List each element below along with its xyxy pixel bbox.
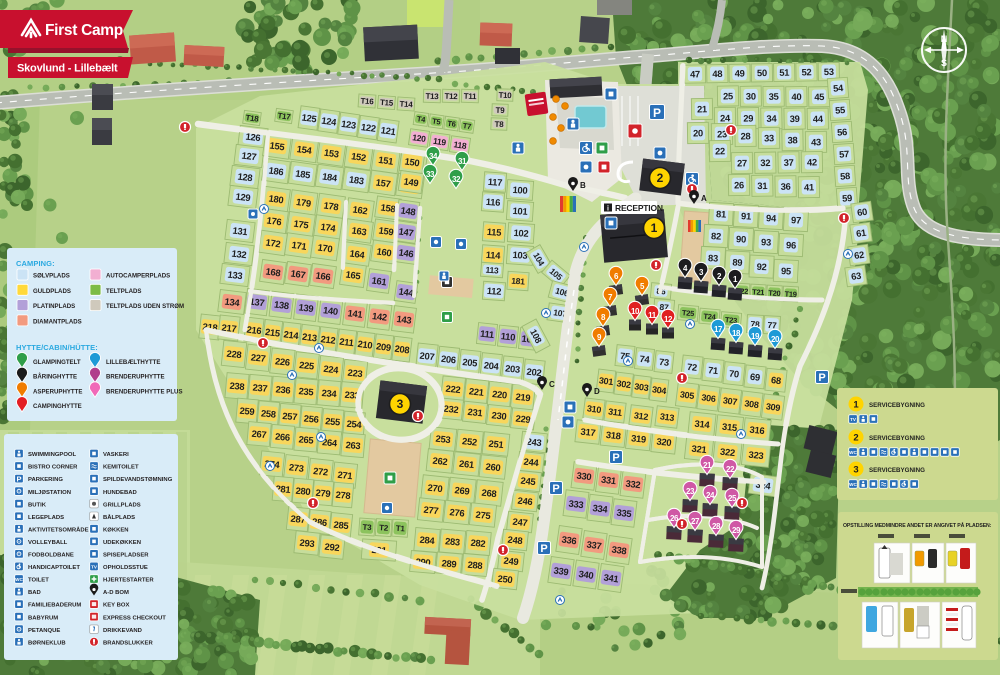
svg-text:40: 40 <box>791 91 801 102</box>
svg-text:303: 303 <box>634 381 650 393</box>
svg-text:47: 47 <box>690 68 700 79</box>
svg-text:129: 129 <box>235 191 251 204</box>
svg-text:BRENDERUPHYTTE PLUS: BRENDERUPHYTTE PLUS <box>106 388 183 395</box>
svg-text:280: 280 <box>295 485 311 497</box>
svg-text:125: 125 <box>301 111 317 124</box>
svg-text:LILLEBÆLTHYTTE: LILLEBÆLTHYTTE <box>106 359 160 366</box>
svg-text:339: 339 <box>553 564 569 577</box>
svg-text:172: 172 <box>265 236 281 249</box>
svg-text:168: 168 <box>265 265 281 278</box>
svg-text:P: P <box>653 106 661 120</box>
svg-text:335: 335 <box>616 507 632 520</box>
svg-text:10: 10 <box>631 307 640 316</box>
svg-text:20: 20 <box>771 335 780 344</box>
svg-text:71: 71 <box>708 364 719 376</box>
svg-text:30: 30 <box>746 91 756 102</box>
svg-text:24: 24 <box>706 491 715 500</box>
svg-text:251: 251 <box>488 438 504 450</box>
svg-text:209: 209 <box>376 340 392 353</box>
svg-text:90: 90 <box>736 233 746 245</box>
svg-text:24: 24 <box>720 112 731 123</box>
svg-text:DRIKKEVAND: DRIKKEVAND <box>103 628 142 634</box>
svg-text:246: 246 <box>517 495 533 507</box>
svg-text:2: 2 <box>853 432 858 443</box>
svg-text:95: 95 <box>781 265 791 277</box>
svg-text:AKTIVITETSOMRÅDE: AKTIVITETSOMRÅDE <box>28 526 89 533</box>
svg-text:255: 255 <box>325 415 341 427</box>
svg-text:336: 336 <box>561 533 577 546</box>
svg-text:202: 202 <box>526 366 542 378</box>
svg-text:T8: T8 <box>494 120 504 129</box>
svg-text:122: 122 <box>360 121 376 134</box>
svg-text:35: 35 <box>769 91 779 102</box>
svg-text:33: 33 <box>426 170 435 179</box>
svg-text:102: 102 <box>513 227 529 239</box>
svg-text:229: 229 <box>515 413 531 425</box>
svg-text:T7: T7 <box>462 121 471 131</box>
svg-text:T5: T5 <box>432 116 441 126</box>
svg-text:175: 175 <box>293 218 309 231</box>
svg-text:170: 170 <box>317 241 333 254</box>
svg-text:231: 231 <box>467 406 483 418</box>
svg-text:178: 178 <box>323 199 339 212</box>
svg-text:17: 17 <box>714 325 723 334</box>
svg-text:315: 315 <box>722 421 738 433</box>
svg-text:267: 267 <box>251 428 267 440</box>
svg-text:278: 278 <box>335 489 351 501</box>
svg-text:162: 162 <box>352 203 368 216</box>
svg-text:263: 263 <box>345 439 361 451</box>
svg-text:T2: T2 <box>379 523 389 533</box>
svg-text:T11: T11 <box>464 92 478 101</box>
svg-text:308: 308 <box>744 398 760 410</box>
svg-text:306: 306 <box>701 392 717 404</box>
svg-text:27: 27 <box>691 517 700 526</box>
svg-text:HANDICAPTOILET: HANDICAPTOILET <box>28 565 80 571</box>
svg-text:29: 29 <box>743 113 753 124</box>
svg-text:228: 228 <box>226 348 242 360</box>
svg-text:338: 338 <box>611 543 627 556</box>
svg-text:214: 214 <box>283 328 300 341</box>
svg-text:63: 63 <box>850 270 861 282</box>
svg-text:93: 93 <box>761 236 771 248</box>
svg-text:279: 279 <box>315 487 331 499</box>
svg-text:340: 340 <box>578 568 594 581</box>
svg-text:1: 1 <box>853 399 859 410</box>
svg-text:186: 186 <box>268 164 284 177</box>
svg-text:SERVICEBYGNING: SERVICEBYGNING <box>869 467 925 474</box>
svg-text:SWIMMINGPOOL: SWIMMINGPOOL <box>28 452 77 458</box>
svg-text:245: 245 <box>520 475 536 487</box>
svg-text:331: 331 <box>601 474 617 487</box>
svg-text:114: 114 <box>486 249 502 261</box>
svg-text:50: 50 <box>757 67 767 78</box>
svg-text:HUNDEBAD: HUNDEBAD <box>103 490 137 496</box>
svg-text:184: 184 <box>322 170 339 183</box>
svg-text:A-D BOM: A-D BOM <box>103 590 129 596</box>
svg-text:183: 183 <box>348 173 364 186</box>
svg-text:BABYRUM: BABYRUM <box>28 615 58 621</box>
svg-text:34: 34 <box>766 113 777 124</box>
svg-text:317: 317 <box>580 426 596 438</box>
svg-text:236: 236 <box>275 383 291 395</box>
svg-text:12: 12 <box>664 315 673 324</box>
svg-text:VOLLEYBALL: VOLLEYBALL <box>28 540 68 546</box>
svg-text:56: 56 <box>837 126 848 138</box>
svg-text:132: 132 <box>231 248 247 261</box>
svg-text:25: 25 <box>728 494 737 503</box>
svg-text:41: 41 <box>804 181 814 192</box>
svg-text:68: 68 <box>771 374 782 386</box>
svg-text:21: 21 <box>703 461 712 470</box>
svg-text:276: 276 <box>449 506 465 518</box>
svg-text:BÅLPLADS: BÅLPLADS <box>103 514 135 521</box>
svg-text:314: 314 <box>694 418 711 431</box>
svg-text:T1: T1 <box>395 524 405 534</box>
svg-text:31: 31 <box>458 157 467 166</box>
svg-text:3: 3 <box>853 464 858 475</box>
svg-text:TELTPLADS UDEN STRØM: TELTPLADS UDEN STRØM <box>106 303 184 310</box>
svg-text:18: 18 <box>732 329 741 338</box>
svg-text:147: 147 <box>398 225 414 238</box>
svg-text:51: 51 <box>779 67 789 78</box>
svg-text:138: 138 <box>274 298 290 311</box>
svg-text:277: 277 <box>423 504 439 516</box>
svg-text:97: 97 <box>791 214 801 226</box>
svg-text:1: 1 <box>651 221 658 235</box>
svg-text:284: 284 <box>419 534 436 546</box>
svg-text:60: 60 <box>856 206 867 218</box>
svg-text:3: 3 <box>397 397 404 411</box>
svg-text:25: 25 <box>723 90 733 101</box>
svg-text:257: 257 <box>282 410 298 422</box>
svg-text:288: 288 <box>467 559 483 571</box>
svg-text:157: 157 <box>375 176 391 189</box>
svg-text:43: 43 <box>811 136 821 147</box>
svg-text:166: 166 <box>315 269 331 282</box>
svg-text:36: 36 <box>781 181 791 192</box>
svg-text:82: 82 <box>711 230 721 242</box>
svg-text:143: 143 <box>396 313 412 326</box>
svg-text:176: 176 <box>266 214 282 227</box>
svg-text:307: 307 <box>722 395 738 407</box>
svg-text:341: 341 <box>603 571 619 584</box>
svg-text:SERVICEBYGNING: SERVICEBYGNING <box>869 402 925 409</box>
svg-text:320: 320 <box>656 436 672 448</box>
svg-text:TELTPLADS: TELTPLADS <box>106 288 141 295</box>
svg-text:RECEPTION: RECEPTION <box>615 203 663 213</box>
svg-text:KEY BOX: KEY BOX <box>103 603 129 609</box>
svg-text:WC: WC <box>15 577 23 582</box>
svg-text:212: 212 <box>320 333 336 346</box>
svg-text:181: 181 <box>511 276 526 287</box>
svg-text:48: 48 <box>712 68 722 79</box>
svg-text:C: C <box>549 380 555 389</box>
svg-text:57: 57 <box>839 148 850 160</box>
svg-text:GLAMPINGTELT: GLAMPINGTELT <box>33 359 81 366</box>
svg-text:301: 301 <box>598 375 614 387</box>
svg-text:271: 271 <box>337 469 353 481</box>
svg-text:BUTIK: BUTIK <box>28 502 47 508</box>
svg-text:152: 152 <box>351 150 367 163</box>
svg-text:272: 272 <box>313 465 329 477</box>
svg-text:T25: T25 <box>682 308 695 318</box>
svg-text:TV: TV <box>850 417 857 422</box>
svg-text:133: 133 <box>227 269 243 282</box>
svg-text:T9: T9 <box>495 106 505 115</box>
svg-text:T14: T14 <box>399 99 413 109</box>
svg-text:T15: T15 <box>380 98 394 108</box>
svg-text:221: 221 <box>468 385 484 397</box>
svg-text:256: 256 <box>303 413 319 425</box>
svg-text:222: 222 <box>445 383 461 395</box>
svg-text:20: 20 <box>693 127 703 138</box>
svg-text:258: 258 <box>261 407 277 419</box>
svg-text:158: 158 <box>380 201 396 214</box>
svg-text:161: 161 <box>371 274 387 287</box>
svg-text:219: 219 <box>515 391 531 403</box>
svg-text:123: 123 <box>341 118 357 131</box>
svg-text:211: 211 <box>339 336 355 349</box>
svg-text:EXPRESS CHECKOUT: EXPRESS CHECKOUT <box>103 615 166 621</box>
svg-text:142: 142 <box>372 310 388 323</box>
svg-text:SPISEPLADSER: SPISEPLADSER <box>103 553 149 559</box>
svg-text:32: 32 <box>760 157 770 168</box>
svg-text:305: 305 <box>679 389 695 401</box>
svg-text:238: 238 <box>229 380 245 392</box>
svg-text:HYTTE/CABIN/HÜTTE:: HYTTE/CABIN/HÜTTE: <box>16 343 98 352</box>
svg-text:KØKKEN: KØKKEN <box>103 527 129 533</box>
svg-text:70: 70 <box>729 368 740 380</box>
svg-text:62: 62 <box>853 249 864 261</box>
svg-text:208: 208 <box>394 343 410 356</box>
svg-text:153: 153 <box>323 147 339 160</box>
svg-text:139: 139 <box>298 301 314 314</box>
svg-text:159: 159 <box>378 224 394 237</box>
svg-text:210: 210 <box>357 338 373 351</box>
svg-text:249: 249 <box>503 555 519 567</box>
svg-text:FAMILIEBADERUM: FAMILIEBADERUM <box>28 603 81 609</box>
svg-text:45: 45 <box>814 91 824 102</box>
svg-text:174: 174 <box>320 221 337 234</box>
svg-text:BISTRO CORNER: BISTRO CORNER <box>28 465 78 471</box>
svg-text:185: 185 <box>295 167 311 180</box>
svg-text:330: 330 <box>576 470 592 483</box>
svg-text:33: 33 <box>764 132 774 143</box>
svg-text:KEMITOILET: KEMITOILET <box>103 465 139 471</box>
svg-text:134: 134 <box>224 296 241 309</box>
svg-text:P: P <box>612 452 619 464</box>
svg-text:154: 154 <box>296 143 313 156</box>
svg-text:T10: T10 <box>498 91 512 100</box>
svg-text:116: 116 <box>486 196 501 208</box>
svg-text:289: 289 <box>441 557 457 569</box>
svg-text:269: 269 <box>454 484 470 496</box>
svg-text:337: 337 <box>586 538 602 551</box>
svg-text:61: 61 <box>855 227 866 239</box>
svg-text:34: 34 <box>429 152 438 161</box>
svg-text:LEGEPLADS: LEGEPLADS <box>28 515 64 521</box>
svg-text:250: 250 <box>497 573 513 585</box>
svg-text:216: 216 <box>246 324 262 337</box>
svg-text:321: 321 <box>691 443 707 455</box>
svg-text:49: 49 <box>735 68 745 79</box>
svg-text:148: 148 <box>400 204 416 217</box>
svg-text:96: 96 <box>786 239 796 251</box>
svg-text:59: 59 <box>842 192 853 204</box>
svg-text:204: 204 <box>483 359 500 372</box>
svg-text:22: 22 <box>715 145 725 156</box>
svg-text:247: 247 <box>512 516 528 528</box>
svg-text:19: 19 <box>751 332 760 341</box>
svg-text:54: 54 <box>833 82 845 94</box>
svg-text:121: 121 <box>380 124 396 137</box>
svg-text:260: 260 <box>485 461 501 473</box>
svg-text:115: 115 <box>487 226 502 238</box>
svg-text:DIAMANTPLADS: DIAMANTPLADS <box>33 319 82 326</box>
svg-text:42: 42 <box>807 156 817 167</box>
svg-text:167: 167 <box>290 267 306 280</box>
svg-text:B: B <box>580 181 586 190</box>
svg-text:23: 23 <box>686 487 695 496</box>
svg-text:BAD: BAD <box>28 590 41 596</box>
svg-text:53: 53 <box>824 66 834 77</box>
svg-text:163: 163 <box>351 224 367 237</box>
svg-text:319: 319 <box>631 432 647 444</box>
svg-text:119: 119 <box>432 136 447 148</box>
svg-text:P: P <box>540 543 547 555</box>
svg-text:FODBOLDBANE: FODBOLDBANE <box>28 553 74 559</box>
svg-text:215: 215 <box>265 326 281 339</box>
svg-text:26: 26 <box>734 179 744 190</box>
svg-text:333: 333 <box>568 498 584 511</box>
svg-text:283: 283 <box>445 535 461 547</box>
svg-text:224: 224 <box>323 363 340 376</box>
svg-text:309: 309 <box>765 401 781 413</box>
svg-text:83: 83 <box>708 252 718 264</box>
svg-text:226: 226 <box>275 355 291 367</box>
svg-text:292: 292 <box>324 541 340 553</box>
svg-text:SPILDEVANDSTØMNING: SPILDEVANDSTØMNING <box>103 477 173 483</box>
svg-text:WC: WC <box>849 450 857 455</box>
svg-text:HJERTESTARTER: HJERTESTARTER <box>103 578 154 584</box>
svg-text:T13: T13 <box>425 92 439 101</box>
svg-text:29: 29 <box>732 526 741 535</box>
svg-text:293: 293 <box>299 537 315 549</box>
svg-text:150: 150 <box>404 155 420 168</box>
svg-text:318: 318 <box>605 429 621 441</box>
svg-text:BØRNEKLUB: BØRNEKLUB <box>28 640 66 646</box>
svg-text:69: 69 <box>750 371 761 383</box>
svg-text:i: i <box>607 206 609 213</box>
svg-text:230: 230 <box>491 409 507 421</box>
svg-text:111: 111 <box>480 328 495 340</box>
svg-text:SERVICEBYGNING: SERVICEBYGNING <box>869 435 925 442</box>
svg-text:T3: T3 <box>362 523 372 533</box>
svg-text:55: 55 <box>835 104 846 116</box>
svg-text:P: P <box>818 372 825 384</box>
svg-text:GULDPLADS: GULDPLADS <box>33 288 71 295</box>
svg-text:207: 207 <box>419 350 435 362</box>
svg-text:117: 117 <box>488 176 503 188</box>
svg-text:S: S <box>941 58 947 68</box>
svg-text:89: 89 <box>732 256 742 268</box>
svg-text:120: 120 <box>412 132 427 144</box>
svg-text:T6: T6 <box>447 119 456 129</box>
svg-text:310: 310 <box>586 403 602 415</box>
svg-text:28: 28 <box>740 130 750 141</box>
svg-text:206: 206 <box>441 353 457 365</box>
svg-text:T17: T17 <box>277 111 292 122</box>
svg-text:110: 110 <box>500 330 515 342</box>
svg-text:312: 312 <box>633 410 649 422</box>
svg-text:234: 234 <box>321 387 338 399</box>
svg-text:OPHOLDSSTUE: OPHOLDSSTUE <box>103 565 148 571</box>
svg-text:164: 164 <box>349 247 366 260</box>
svg-text:T18: T18 <box>245 113 260 124</box>
svg-text:213: 213 <box>302 331 318 344</box>
svg-text:21: 21 <box>697 103 707 114</box>
svg-text:113: 113 <box>485 265 499 276</box>
svg-text:AUTOCAMPERPLADS: AUTOCAMPERPLADS <box>106 273 170 280</box>
svg-text:44: 44 <box>813 113 824 124</box>
svg-text:MILJØSTATION: MILJØSTATION <box>28 490 71 496</box>
svg-text:232: 232 <box>443 403 459 415</box>
svg-text:Skovlund - Lillebælt: Skovlund - Lillebælt <box>17 63 118 75</box>
svg-text:205: 205 <box>462 356 478 368</box>
svg-text:237: 237 <box>252 382 268 394</box>
svg-text:BÅRINGHYTTE: BÅRINGHYTTE <box>33 374 77 381</box>
svg-text:WC: WC <box>849 482 857 487</box>
svg-text:140: 140 <box>323 304 339 317</box>
svg-text:259: 259 <box>239 405 255 417</box>
svg-text:265: 265 <box>298 433 314 445</box>
svg-text:270: 270 <box>427 482 443 494</box>
svg-text:302: 302 <box>616 378 632 390</box>
svg-text:52: 52 <box>801 66 811 77</box>
svg-text:PETANQUE: PETANQUE <box>28 628 60 634</box>
svg-text:285: 285 <box>333 519 349 531</box>
svg-text:180: 180 <box>268 192 284 205</box>
svg-text:146: 146 <box>398 246 414 259</box>
svg-text:38: 38 <box>787 134 797 145</box>
svg-text:127: 127 <box>241 150 257 163</box>
svg-text:151: 151 <box>378 154 394 167</box>
svg-text:124: 124 <box>321 115 338 128</box>
svg-text:118: 118 <box>453 139 468 151</box>
svg-text:266: 266 <box>275 431 291 443</box>
svg-text:141: 141 <box>347 307 363 320</box>
svg-text:225: 225 <box>299 359 315 371</box>
svg-text:100: 100 <box>512 184 528 196</box>
svg-text:103: 103 <box>512 249 528 261</box>
svg-text:BRENDERUPHYTTE: BRENDERUPHYTTE <box>106 374 165 381</box>
svg-text:268: 268 <box>481 487 497 499</box>
svg-text:244: 244 <box>523 456 540 469</box>
svg-text:220: 220 <box>492 388 508 400</box>
svg-text:101: 101 <box>512 205 528 217</box>
svg-text:261: 261 <box>459 458 475 470</box>
svg-text:248: 248 <box>507 534 523 546</box>
svg-text:37: 37 <box>784 157 794 168</box>
svg-text:262: 262 <box>432 455 448 467</box>
svg-text:334: 334 <box>592 502 609 515</box>
svg-text:171: 171 <box>291 239 307 252</box>
svg-text:227: 227 <box>250 351 266 363</box>
svg-text:179: 179 <box>295 196 311 209</box>
svg-text:SØLVPLADS: SØLVPLADS <box>33 273 70 280</box>
svg-text:223: 223 <box>347 367 363 379</box>
